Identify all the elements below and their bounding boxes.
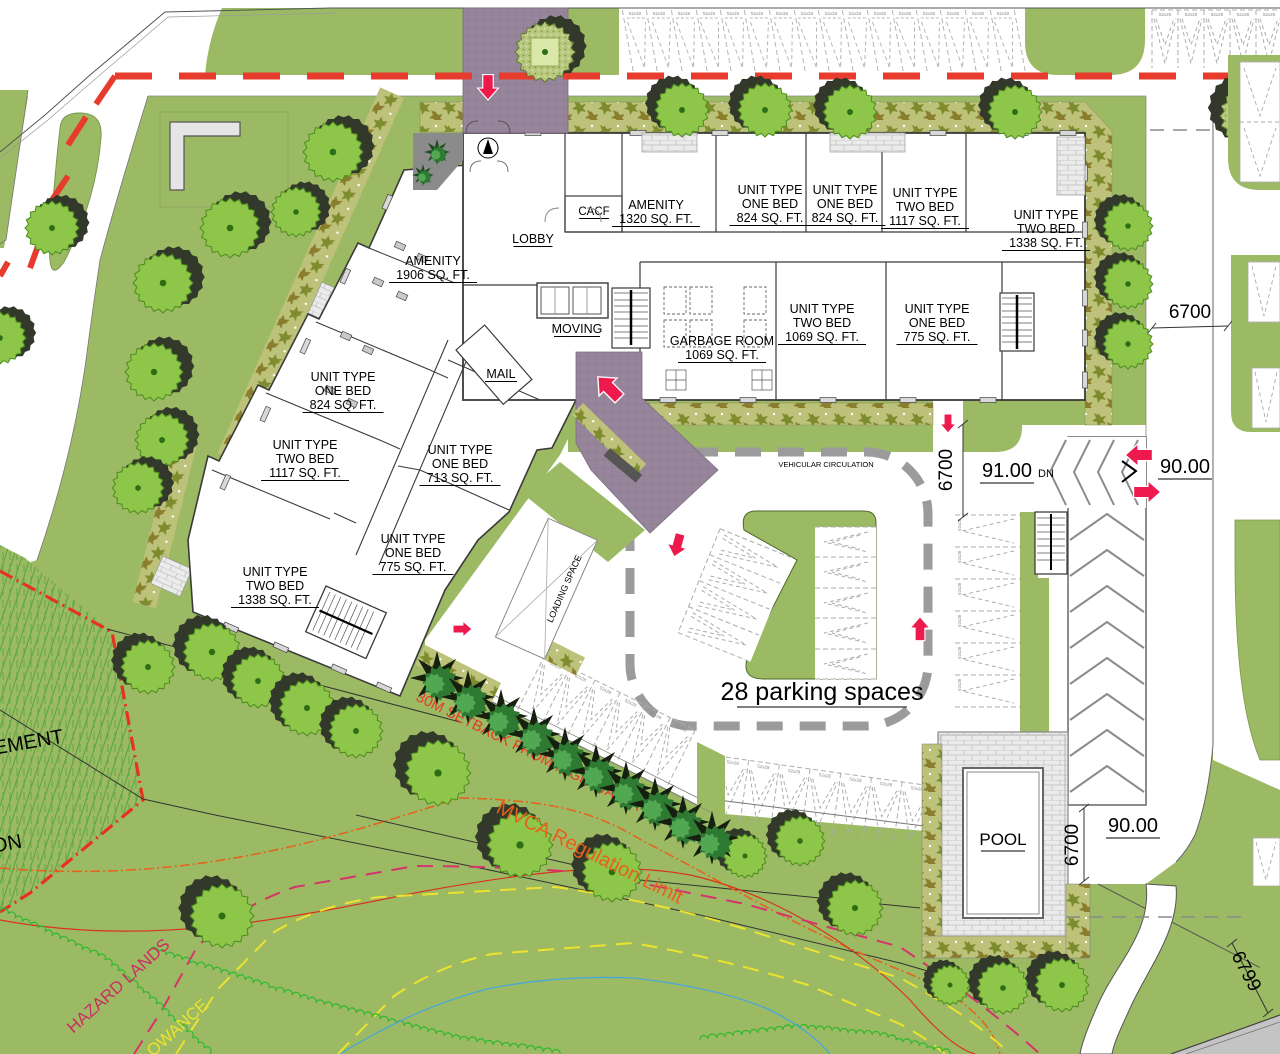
svg-text:MOVING: MOVING bbox=[552, 322, 603, 336]
svg-text:TWO BED: TWO BED bbox=[246, 579, 304, 593]
svg-text:VEHICULAR CIRCULATION: VEHICULAR CIRCULATION bbox=[778, 460, 873, 469]
svg-text:52x28: 52x28 bbox=[1237, 12, 1250, 17]
svg-text:52x28: 52x28 bbox=[1185, 12, 1198, 17]
svg-text:52x28: 52x28 bbox=[1159, 12, 1172, 17]
svg-text:28 parking spaces: 28 parking spaces bbox=[721, 678, 924, 706]
svg-text:GARBAGE ROOM: GARBAGE ROOM bbox=[670, 334, 774, 348]
svg-text:1320 SQ. FT.: 1320 SQ. FT. bbox=[619, 212, 693, 226]
svg-text:824 SQ. FT.: 824 SQ. FT. bbox=[812, 211, 879, 225]
svg-text:DN: DN bbox=[1038, 468, 1054, 480]
svg-text:52x28: 52x28 bbox=[1211, 12, 1224, 17]
svg-text:52x28: 52x28 bbox=[957, 614, 962, 627]
svg-text:UNIT TYPE: UNIT TYPE bbox=[428, 443, 493, 457]
svg-text:1906 SQ. FT.: 1906 SQ. FT. bbox=[396, 268, 470, 282]
svg-text:52x28: 52x28 bbox=[800, 11, 814, 16]
svg-text:AMENITY: AMENITY bbox=[405, 254, 461, 268]
svg-text:TWO BED: TWO BED bbox=[276, 452, 334, 466]
svg-text:52x28: 52x28 bbox=[898, 11, 912, 16]
svg-text:6700: 6700 bbox=[1062, 824, 1083, 866]
svg-text:UNIT TYPE: UNIT TYPE bbox=[738, 183, 803, 197]
svg-text:AMENITY: AMENITY bbox=[628, 198, 684, 212]
svg-text:6700: 6700 bbox=[1169, 302, 1211, 323]
svg-text:MAIL: MAIL bbox=[486, 367, 515, 381]
svg-text:824 SQ. FT.: 824 SQ. FT. bbox=[737, 211, 804, 225]
svg-text:ONE BED: ONE BED bbox=[817, 197, 873, 211]
svg-text:ONE BED: ONE BED bbox=[432, 457, 488, 471]
svg-text:90.00: 90.00 bbox=[1160, 456, 1210, 478]
svg-text:LOBBY: LOBBY bbox=[512, 232, 554, 246]
svg-text:824 SQ. FT.: 824 SQ. FT. bbox=[310, 398, 377, 412]
svg-text:UNIT TYPE: UNIT TYPE bbox=[905, 302, 970, 316]
svg-text:UNIT TYPE: UNIT TYPE bbox=[813, 183, 878, 197]
svg-text:UNIT TYPE: UNIT TYPE bbox=[893, 186, 958, 200]
svg-text:1117 SQ. FT.: 1117 SQ. FT. bbox=[269, 466, 341, 480]
svg-text:52x28: 52x28 bbox=[957, 550, 962, 563]
svg-text:UNIT TYPE: UNIT TYPE bbox=[273, 438, 338, 452]
svg-text:52x28: 52x28 bbox=[848, 11, 862, 16]
svg-text:UNIT TYPE: UNIT TYPE bbox=[243, 565, 308, 579]
svg-text:1069 SQ. FT.: 1069 SQ. FT. bbox=[785, 330, 859, 344]
svg-text:52x28: 52x28 bbox=[652, 11, 666, 16]
svg-text:TWO BED: TWO BED bbox=[1017, 222, 1075, 236]
svg-text:713 SQ. FT.: 713 SQ. FT. bbox=[427, 471, 494, 485]
svg-text:775 SQ. FT.: 775 SQ. FT. bbox=[904, 330, 971, 344]
svg-text:UNIT TYPE: UNIT TYPE bbox=[790, 302, 855, 316]
svg-text:1117 SQ. FT.: 1117 SQ. FT. bbox=[889, 214, 961, 228]
svg-text:52x28: 52x28 bbox=[922, 11, 936, 16]
svg-text:1338 SQ. FT.: 1338 SQ. FT. bbox=[1009, 236, 1083, 250]
svg-text:UNIT TYPE: UNIT TYPE bbox=[381, 532, 446, 546]
svg-text:52x28: 52x28 bbox=[996, 11, 1010, 16]
svg-text:52x28: 52x28 bbox=[957, 582, 962, 595]
svg-text:ONE BED: ONE BED bbox=[315, 384, 371, 398]
svg-text:ONE BED: ONE BED bbox=[742, 197, 798, 211]
svg-text:POOL: POOL bbox=[979, 830, 1026, 849]
svg-text:TWO BED: TWO BED bbox=[793, 316, 851, 330]
svg-text:775 SQ. FT.: 775 SQ. FT. bbox=[380, 560, 447, 574]
svg-text:52x28: 52x28 bbox=[628, 11, 642, 16]
svg-text:52x28: 52x28 bbox=[750, 11, 764, 16]
svg-text:52x28: 52x28 bbox=[702, 11, 716, 16]
svg-text:52x28: 52x28 bbox=[775, 11, 789, 16]
svg-text:6700: 6700 bbox=[936, 449, 957, 491]
svg-text:52x28: 52x28 bbox=[957, 678, 962, 691]
svg-text:1069 SQ. FT.: 1069 SQ. FT. bbox=[685, 348, 759, 362]
svg-text:52x28: 52x28 bbox=[957, 646, 962, 659]
svg-text:90.00: 90.00 bbox=[1108, 815, 1158, 837]
svg-text:ONE BED: ONE BED bbox=[385, 546, 441, 560]
svg-text:1338 SQ. FT.: 1338 SQ. FT. bbox=[238, 593, 312, 607]
svg-text:52x28: 52x28 bbox=[971, 11, 985, 16]
svg-text:52x28: 52x28 bbox=[824, 11, 838, 16]
svg-text:52x28: 52x28 bbox=[1263, 12, 1276, 17]
svg-text:TWO BED: TWO BED bbox=[896, 200, 954, 214]
svg-text:UNIT TYPE: UNIT TYPE bbox=[1014, 208, 1079, 222]
svg-text:52x28: 52x28 bbox=[726, 11, 740, 16]
svg-text:52x28: 52x28 bbox=[677, 11, 691, 16]
svg-text:52x28: 52x28 bbox=[873, 11, 887, 16]
svg-text:ONE BED: ONE BED bbox=[909, 316, 965, 330]
svg-text:CACF: CACF bbox=[578, 206, 609, 218]
svg-text:91.00: 91.00 bbox=[982, 460, 1032, 482]
svg-text:52x28: 52x28 bbox=[946, 11, 960, 16]
svg-text:UNIT TYPE: UNIT TYPE bbox=[311, 370, 376, 384]
